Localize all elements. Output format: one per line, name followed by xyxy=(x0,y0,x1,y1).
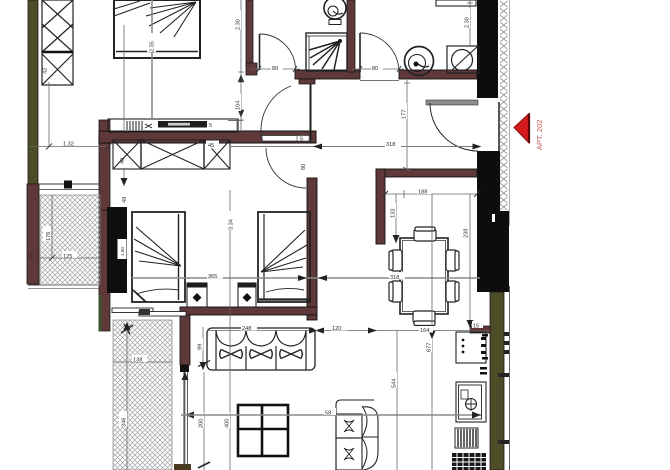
svg-text:188: 188 xyxy=(418,190,427,196)
svg-text:2.30: 2.30 xyxy=(465,17,471,28)
svg-text:176: 176 xyxy=(46,232,52,241)
svg-text:99: 99 xyxy=(198,344,204,350)
svg-text:544: 544 xyxy=(392,379,398,388)
svg-text:20: 20 xyxy=(28,254,34,260)
svg-text:1.60: 1.60 xyxy=(120,247,125,256)
svg-text:45: 45 xyxy=(208,143,214,149)
svg-text:APT. 202: APT. 202 xyxy=(535,120,544,150)
svg-text:677: 677 xyxy=(427,343,433,352)
svg-text:15: 15 xyxy=(473,324,479,330)
svg-text:49: 49 xyxy=(122,197,128,203)
svg-text:80: 80 xyxy=(272,66,278,72)
svg-text:125: 125 xyxy=(63,254,72,260)
svg-text:200: 200 xyxy=(199,419,205,428)
svg-text:5: 5 xyxy=(300,137,303,143)
svg-text:238: 238 xyxy=(464,229,470,238)
svg-text:365: 365 xyxy=(208,274,217,280)
svg-text:42: 42 xyxy=(43,68,49,74)
svg-text:133: 133 xyxy=(391,209,397,218)
svg-text:164: 164 xyxy=(420,328,429,334)
svg-text:400: 400 xyxy=(225,419,231,428)
svg-text:2.35: 2.35 xyxy=(150,41,156,52)
svg-text:80: 80 xyxy=(301,164,307,170)
svg-text:1.32: 1.32 xyxy=(63,142,74,148)
svg-text:40: 40 xyxy=(120,158,126,164)
svg-text:248: 248 xyxy=(242,326,251,332)
svg-text:58: 58 xyxy=(325,411,331,417)
svg-text:3.34: 3.34 xyxy=(229,219,235,230)
svg-text:104: 104 xyxy=(236,101,242,110)
svg-text:2.30: 2.30 xyxy=(236,19,242,30)
svg-text:318: 318 xyxy=(386,142,395,148)
svg-text:318: 318 xyxy=(390,275,399,281)
svg-text:80: 80 xyxy=(372,66,378,72)
svg-text:177: 177 xyxy=(402,110,408,119)
svg-text:120: 120 xyxy=(332,326,341,332)
svg-text:346: 346 xyxy=(122,418,128,427)
svg-text:5: 5 xyxy=(209,123,212,129)
svg-text:138: 138 xyxy=(133,358,142,364)
